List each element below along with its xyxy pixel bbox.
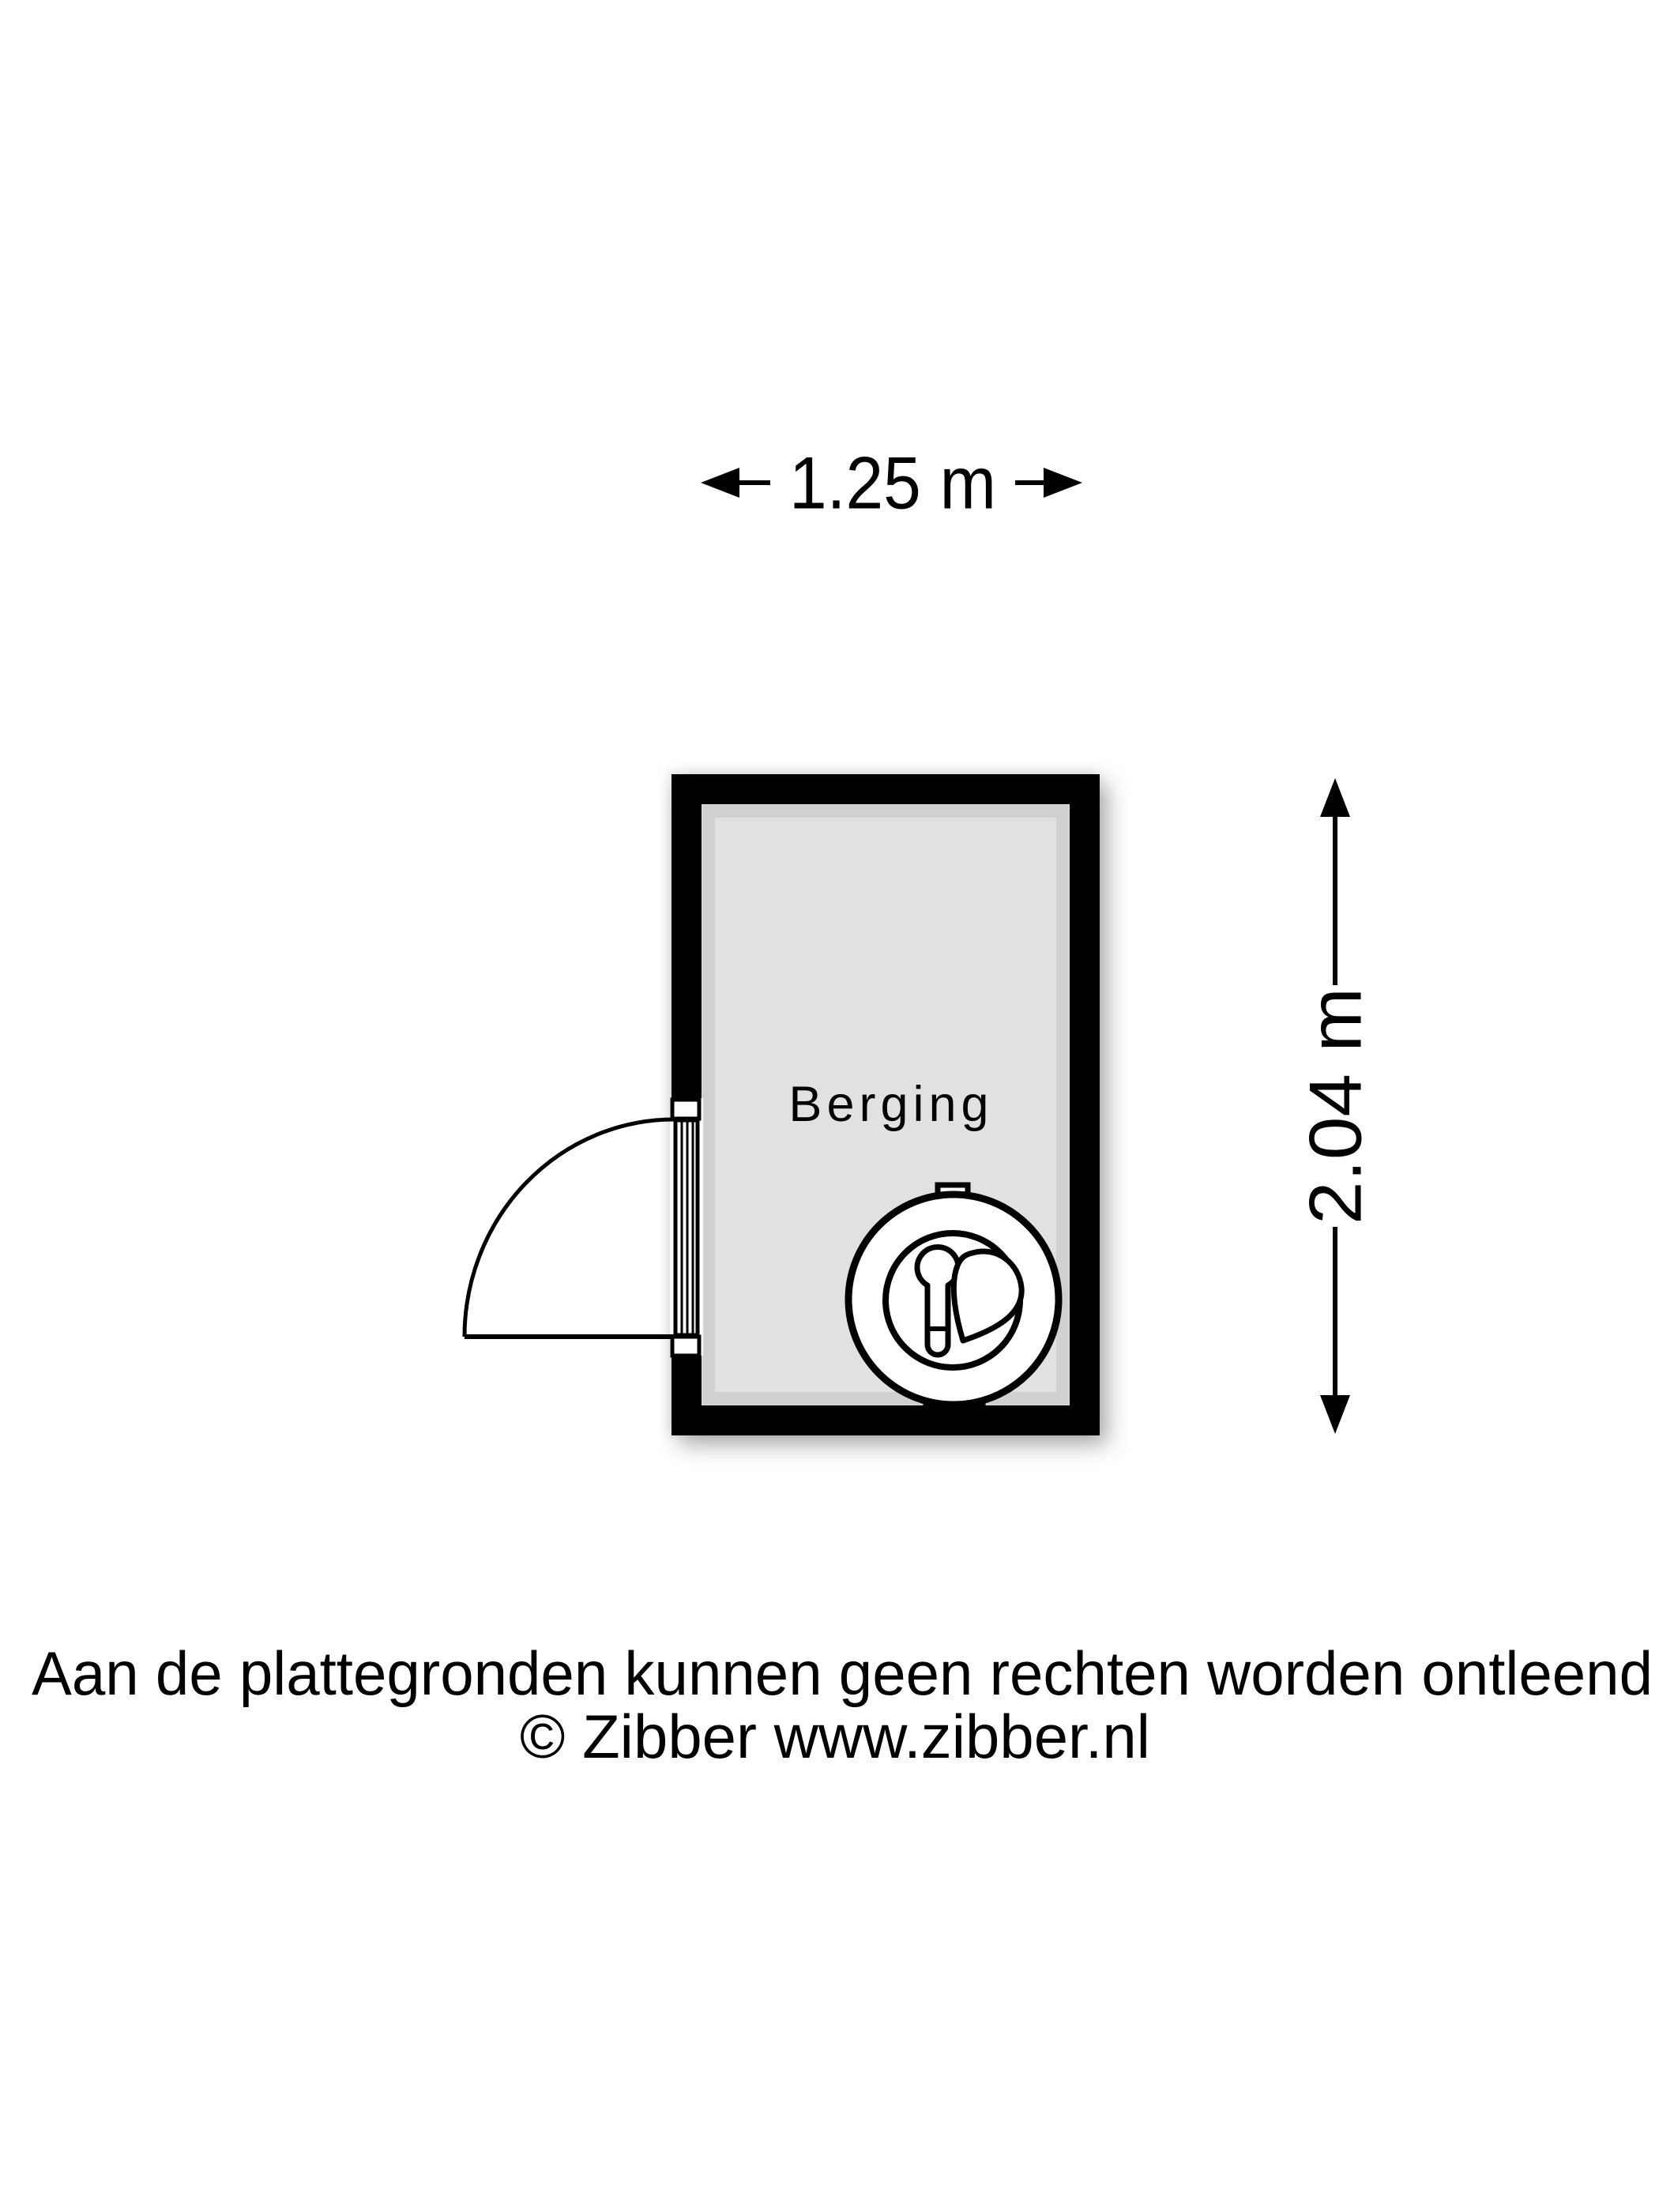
arrow-down-icon <box>1320 1395 1350 1434</box>
door-jamb-top <box>672 1100 699 1119</box>
arrow-left-icon <box>701 468 739 498</box>
arrow-right-icon <box>1044 468 1082 498</box>
width-dimension-label: 1.25 m <box>789 442 996 525</box>
height-dimension-label: 2.04 m <box>1294 987 1377 1224</box>
door-swing-arc <box>465 1119 674 1337</box>
height-dimension: 2.04 m <box>1294 778 1377 1434</box>
floorplan-canvas: 1.25 m Berging <box>0 0 1659 2212</box>
door-jamb-bottom <box>672 1337 699 1356</box>
footer: Aan de plattegronden kunnen geen rechten… <box>32 1638 1653 1771</box>
room-label: Berging <box>788 1077 993 1132</box>
width-dimension: 1.25 m <box>701 442 1082 525</box>
door-swing-icon <box>465 1098 703 1356</box>
floorplan-page: 1.25 m Berging <box>0 0 1659 2212</box>
arrow-up-icon <box>1320 778 1350 817</box>
copyright-text: © Zibber www.zibber.nl <box>520 1702 1150 1771</box>
disclaimer-text: Aan de plattegronden kunnen geen rechten… <box>32 1638 1653 1708</box>
